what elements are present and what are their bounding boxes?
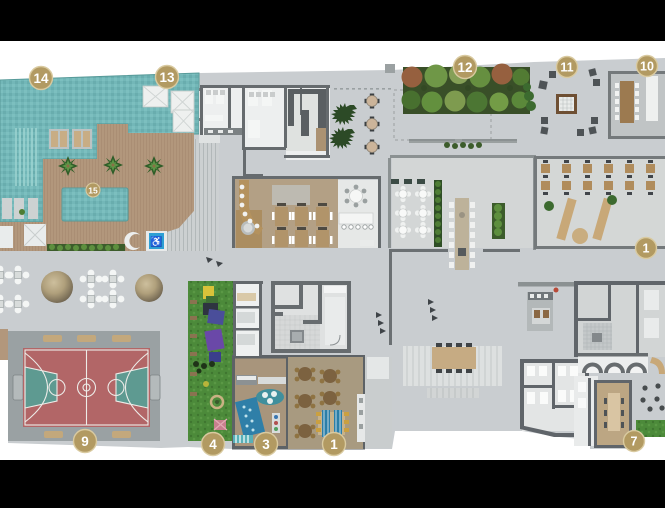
svg-text:11: 11 <box>560 60 573 74</box>
svg-text:1: 1 <box>643 241 650 255</box>
svg-text:7: 7 <box>631 434 638 448</box>
svg-text:4: 4 <box>209 437 217 452</box>
svg-text:15: 15 <box>88 185 98 195</box>
svg-text:14: 14 <box>33 71 49 86</box>
svg-text:3: 3 <box>262 437 270 452</box>
svg-text:13: 13 <box>159 70 175 85</box>
svg-text:9: 9 <box>81 434 89 449</box>
svg-text:12: 12 <box>457 60 472 75</box>
svg-text:♿: ♿ <box>150 235 162 248</box>
svg-text:10: 10 <box>640 59 654 73</box>
svg-text:1: 1 <box>330 437 338 452</box>
